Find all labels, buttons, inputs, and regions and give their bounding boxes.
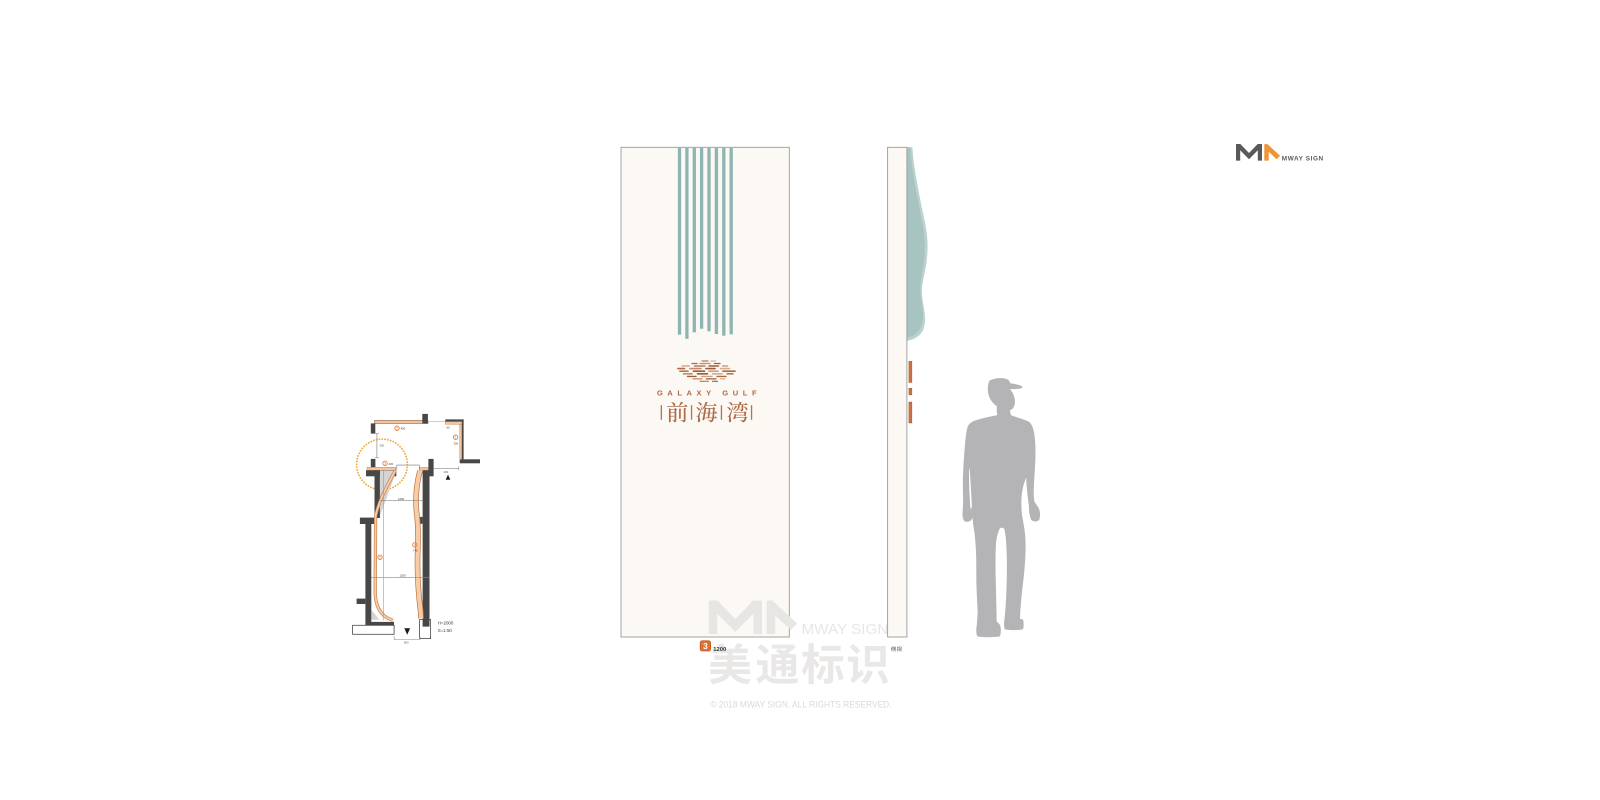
svg-text:MWAY SIGN: MWAY SIGN: [802, 622, 889, 638]
svg-text:5: 5: [379, 556, 381, 560]
svg-text:3: 3: [384, 462, 386, 466]
svg-text:60: 60: [447, 426, 451, 430]
svg-text:2: 2: [396, 426, 398, 430]
svg-text:3: 3: [703, 642, 708, 651]
svg-text:4: 4: [414, 543, 416, 547]
svg-text:200: 200: [444, 470, 449, 474]
svg-text:600: 600: [404, 641, 409, 645]
svg-text:745: 745: [413, 548, 418, 552]
svg-text:300: 300: [454, 442, 459, 446]
svg-text:400: 400: [401, 426, 406, 430]
svg-text:300: 300: [379, 443, 384, 447]
svg-text:1200: 1200: [713, 647, 726, 653]
svg-text:1200: 1200: [398, 497, 405, 501]
svg-text:H=2000: H=2000: [438, 621, 454, 626]
svg-text:S=1:50: S=1:50: [438, 628, 453, 633]
svg-text:MWAY SIGN: MWAY SIGN: [1282, 155, 1324, 162]
svg-text:1: 1: [455, 435, 457, 439]
svg-text:200: 200: [389, 462, 394, 466]
svg-text:© 2018 MWAY SIGN, ALL RIGHTS R: © 2018 MWAY SIGN, ALL RIGHTS RESERVED.: [710, 700, 891, 711]
svg-text:1200: 1200: [400, 574, 407, 578]
svg-text:GALAXY GULF: GALAXY GULF: [657, 388, 761, 397]
